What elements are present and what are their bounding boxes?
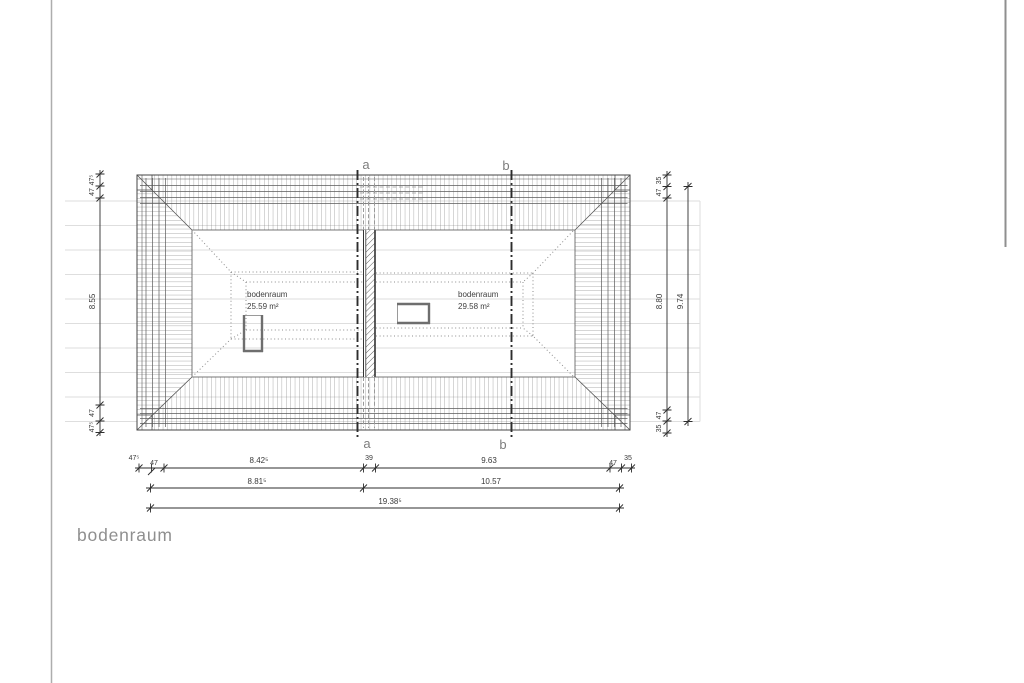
dim-l-475b: 47⁵ bbox=[89, 422, 96, 433]
section-label-a-bottom: a bbox=[363, 436, 371, 451]
dim-b1-8425: 8.42⁵ bbox=[250, 456, 269, 465]
dim-r-35b: 35 bbox=[656, 425, 663, 433]
room-left-area: 25.59 m² bbox=[247, 302, 279, 311]
dimension-bottom-labels: 47⁵ 47 8.42⁵ 39 9.63 47 35 8.81⁵ 10.57 1… bbox=[129, 455, 632, 506]
party-wall bbox=[363, 230, 376, 377]
roof-hatch-bands bbox=[137, 175, 630, 430]
dim-r-880: 8.80 bbox=[655, 293, 664, 309]
dim-r-47b: 47 bbox=[656, 412, 663, 420]
dimension-right-labels: 35 47 8.80 47 35 9.74 bbox=[655, 177, 685, 433]
dim-b1-475: 47⁵ bbox=[129, 455, 140, 462]
dim-b1-47r: 47 bbox=[609, 460, 617, 467]
dimension-left-labels: 47⁵ 47 8.55 47 47⁵ bbox=[88, 175, 97, 433]
dim-l-855: 8.55 bbox=[88, 293, 97, 309]
dim-r-35t: 35 bbox=[656, 177, 663, 185]
dim-b1-39: 39 bbox=[365, 455, 373, 462]
chimney-left bbox=[243, 315, 263, 352]
dim-l-47b: 47 bbox=[89, 409, 96, 417]
section-label-b-top: b bbox=[502, 158, 509, 173]
section-label-a-top: a bbox=[362, 157, 370, 172]
dim-l-47t: 47 bbox=[89, 188, 96, 196]
floor-plan-drawing: a b a b bodenraum 25.59 m² bodenraum 29.… bbox=[0, 0, 1024, 683]
dim-b2-8815: 8.81⁵ bbox=[248, 477, 267, 486]
scanned-floor-plan-page: a b a b bodenraum 25.59 m² bodenraum 29.… bbox=[0, 0, 1024, 683]
scan-margin-lines bbox=[52, 0, 1006, 683]
dim-l-475t: 47⁵ bbox=[89, 175, 96, 186]
sheet-title: bodenraum bbox=[77, 525, 173, 545]
dim-r-47t: 47 bbox=[656, 189, 663, 197]
dim-b2-1057: 10.57 bbox=[481, 477, 502, 486]
section-label-b-bottom: b bbox=[499, 437, 506, 452]
dim-b1-47l: 47 bbox=[150, 460, 158, 467]
dim-b1-963: 9.63 bbox=[481, 456, 497, 465]
dim-b1-35: 35 bbox=[624, 455, 632, 462]
room-left-name: bodenraum bbox=[247, 290, 288, 299]
dim-r-974: 9.74 bbox=[676, 293, 685, 309]
room-right-name: bodenraum bbox=[458, 290, 499, 299]
dim-b3-19385: 19.38⁵ bbox=[378, 497, 401, 506]
room-right-area: 29.58 m² bbox=[458, 302, 490, 311]
chimney-right bbox=[397, 303, 430, 324]
